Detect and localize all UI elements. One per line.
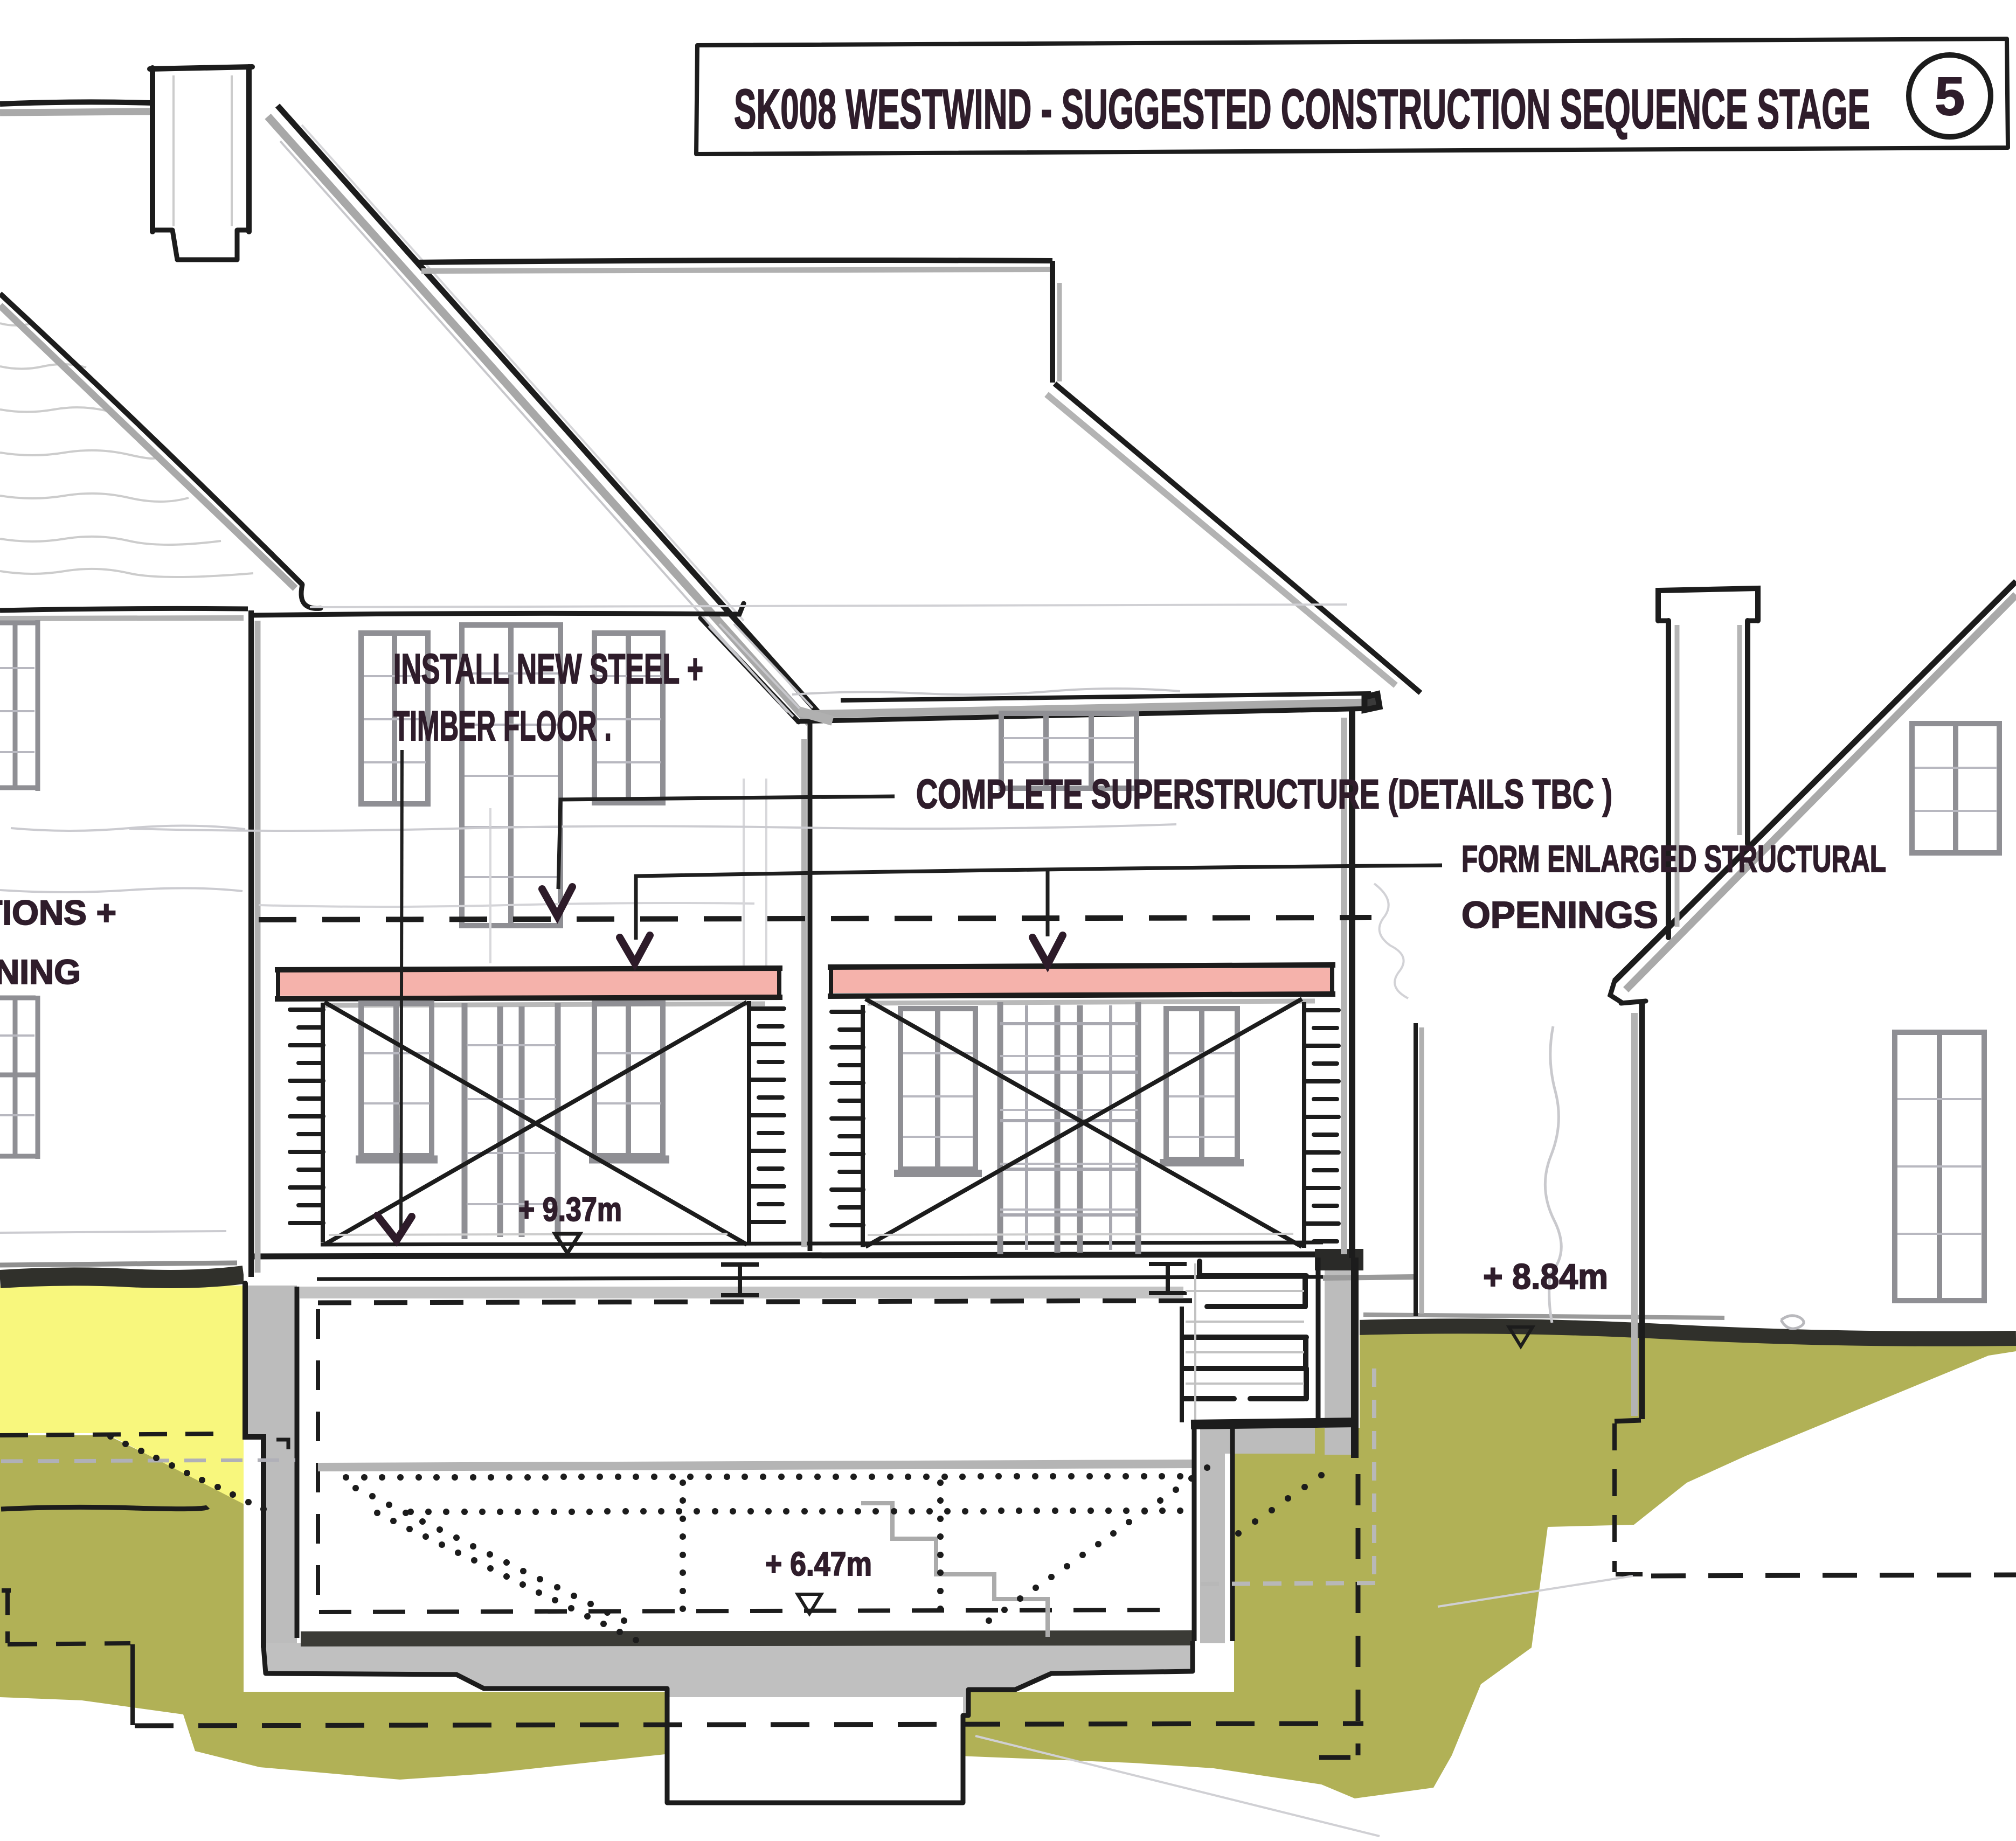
svg-text:OPENINGS: OPENINGS [1461,894,1658,936]
svg-text:PINNING: PINNING [0,953,81,991]
svg-text:LITIONS +: LITIONS + [0,893,116,932]
svg-text:TIMBER FLOOR .: TIMBER FLOOR . [393,702,612,749]
svg-text:+ 9.37m: + 9.37m [518,1191,622,1228]
svg-text:COMPLETE SUPERSTRUCTURE (DETAI: COMPLETE SUPERSTRUCTURE (DETAILS TBC ) [916,772,1612,817]
svg-text:INSTALL NEW STEEL +: INSTALL NEW STEEL + [393,645,703,692]
svg-text:+ 6.47m: + 6.47m [765,1546,872,1583]
svg-text:5: 5 [1935,66,1965,127]
svg-text:+ 8.84m: + 8.84m [1483,1256,1608,1296]
svg-text:FORM ENLARGED STRUCTURAL: FORM ENLARGED STRUCTURAL [1461,838,1886,880]
svg-text:SK008 WESTWIND - SUGGESTED C: SK008 WESTWIND - SUGGESTED CONSTRUCTION … [734,78,1870,141]
